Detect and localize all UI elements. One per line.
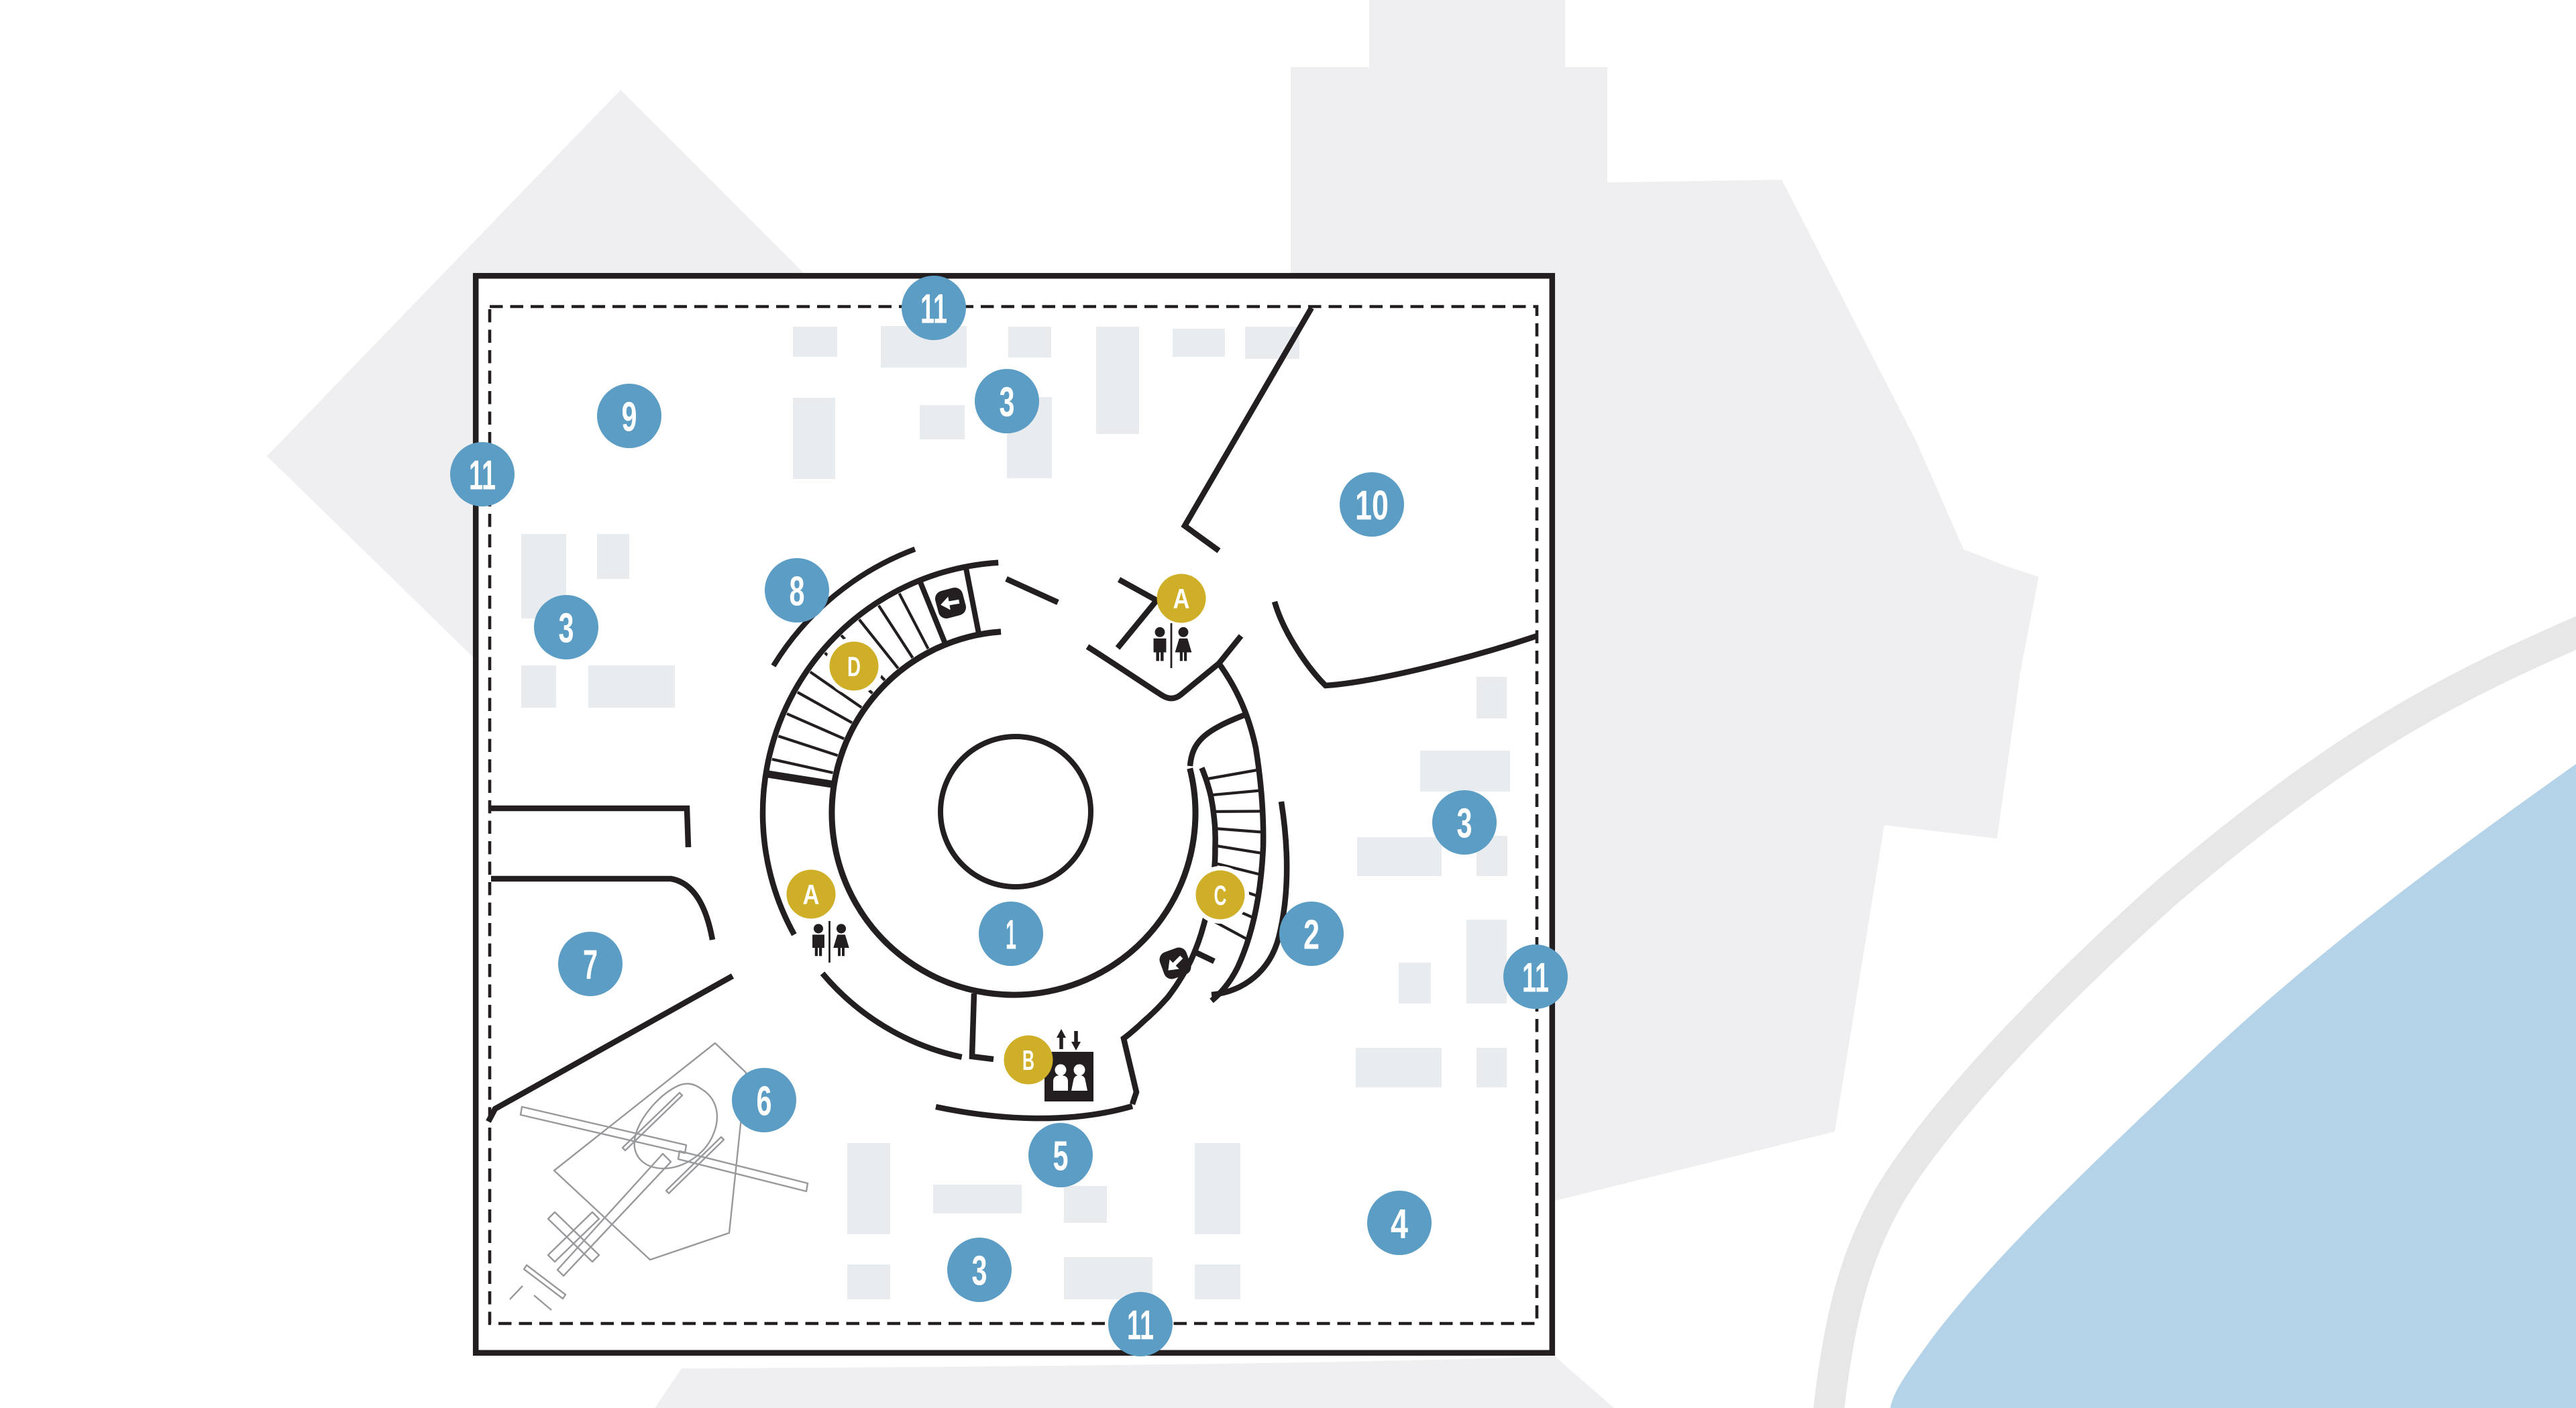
svg-text:D: D (847, 651, 861, 682)
svg-text:A: A (1173, 583, 1190, 614)
svg-text:2: 2 (1303, 912, 1320, 959)
svg-text:C: C (1214, 879, 1227, 911)
svg-text:1: 1 (1006, 912, 1016, 959)
svg-text:3: 3 (1000, 380, 1015, 426)
svg-text:10: 10 (1355, 483, 1389, 529)
svg-text:9: 9 (622, 394, 637, 441)
svg-text:11: 11 (469, 453, 496, 499)
svg-text:11: 11 (1127, 1303, 1154, 1349)
svg-text:3: 3 (972, 1248, 987, 1295)
svg-text:8: 8 (790, 569, 805, 615)
svg-text:3: 3 (559, 606, 574, 652)
svg-text:6: 6 (757, 1079, 772, 1125)
svg-text:B: B (1022, 1044, 1034, 1076)
svg-text:5: 5 (1053, 1134, 1069, 1180)
svg-text:3: 3 (1457, 801, 1472, 847)
svg-text:11: 11 (920, 286, 947, 333)
svg-text:11: 11 (1522, 955, 1549, 1001)
svg-text:7: 7 (583, 942, 598, 989)
svg-text:A: A (803, 879, 820, 910)
svg-text:4: 4 (1391, 1201, 1408, 1248)
